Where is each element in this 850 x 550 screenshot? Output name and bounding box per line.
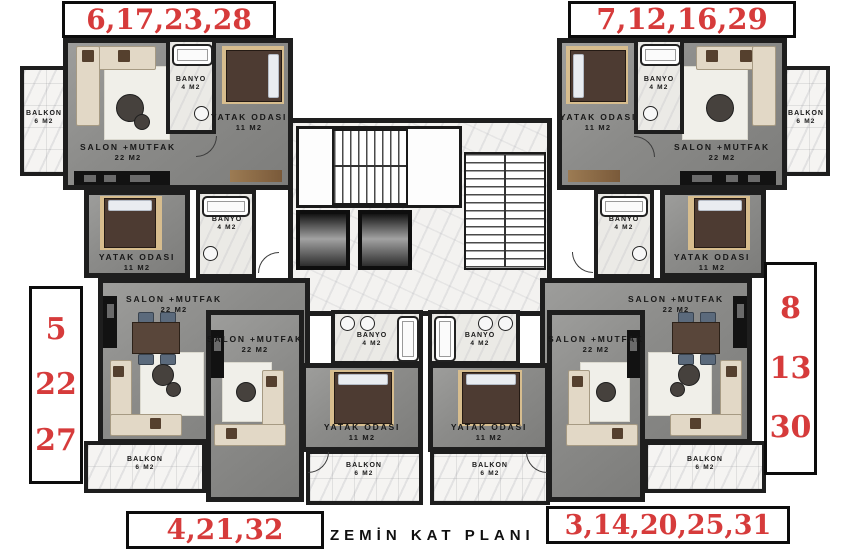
coffee-table bbox=[134, 114, 150, 130]
sofa-cushion bbox=[572, 376, 583, 387]
staircase-icon bbox=[332, 129, 408, 205]
coffee-table bbox=[236, 382, 256, 402]
apartment-numbers-mid-left: 5 22 27 bbox=[29, 286, 83, 484]
label-salon: SALON +MUTFAK 22 M2 bbox=[628, 294, 724, 314]
stove-burner bbox=[737, 304, 744, 318]
bathtub bbox=[397, 316, 419, 362]
chair bbox=[700, 354, 716, 365]
apartment-numbers-top-right: 7,12,16,29 bbox=[568, 1, 796, 38]
page-title: ZEMİN KAT PLANI bbox=[330, 527, 535, 544]
dining-table bbox=[132, 322, 180, 354]
label-balcony: BALKON 6 M2 bbox=[127, 456, 163, 471]
label-salon: SALON +MUTFAK 22 M2 bbox=[548, 334, 644, 354]
label-balcony: BALKON 6 M2 bbox=[788, 110, 824, 125]
label-banyo: BANYO 4 M2 bbox=[176, 76, 206, 91]
elevator-shaft bbox=[358, 210, 412, 270]
apartment-numbers-mid-right: 8 13 30 bbox=[764, 262, 817, 475]
elevator-shaft bbox=[296, 210, 350, 270]
sofa bbox=[752, 46, 776, 126]
apartment-numbers-top-left: 6,17,23,28 bbox=[62, 1, 276, 38]
sink bbox=[632, 246, 647, 261]
apartment-numbers-bottom-right: 3,14,20,25,31 bbox=[546, 506, 790, 544]
stove-burner bbox=[107, 304, 114, 318]
label-banyo: BANYO 4 M2 bbox=[644, 76, 674, 91]
coffee-table bbox=[706, 94, 734, 122]
label-salon: SALON +MUTFAK 22 M2 bbox=[207, 334, 303, 354]
bathtub bbox=[202, 196, 250, 217]
sofa-cushion bbox=[118, 50, 130, 62]
sink bbox=[643, 106, 658, 121]
sofa-cushion bbox=[113, 366, 124, 377]
sofa bbox=[566, 424, 638, 446]
stove-burner bbox=[84, 175, 96, 182]
label-salon: SALON +MUTFAK 22 M2 bbox=[80, 142, 176, 162]
label-bedroom: YATAK ODASI 11 M2 bbox=[451, 422, 527, 442]
pillow bbox=[338, 374, 388, 385]
label-bedroom: YATAK ODASI 11 M2 bbox=[211, 112, 287, 132]
bathtub bbox=[640, 44, 681, 66]
apartment-numbers-bottom-left: 4,21,32 bbox=[126, 511, 324, 549]
chair bbox=[138, 354, 154, 365]
label-banyo: BANYO 4 M2 bbox=[465, 332, 495, 347]
label-balcony: BALKON 6 M2 bbox=[346, 462, 382, 477]
wardrobe bbox=[230, 170, 282, 182]
sink bbox=[194, 106, 209, 121]
label-salon: SALON +MUTFAK 22 M2 bbox=[126, 294, 222, 314]
sofa-cushion bbox=[612, 428, 623, 439]
sofa-cushion bbox=[226, 428, 237, 439]
bathtub bbox=[600, 196, 648, 217]
label-bedroom: YATAK ODASI 11 M2 bbox=[674, 252, 750, 272]
sofa-cushion bbox=[82, 50, 94, 62]
sofa-cushion bbox=[266, 376, 277, 387]
label-bedroom: YATAK ODASI 11 M2 bbox=[324, 422, 400, 442]
pillow bbox=[573, 54, 584, 98]
pillow bbox=[698, 200, 742, 211]
sink bbox=[340, 316, 355, 331]
sofa-cushion bbox=[150, 418, 161, 429]
sofa-cushion bbox=[726, 366, 737, 377]
pillow bbox=[268, 54, 279, 98]
sofa-cushion bbox=[706, 50, 718, 62]
pillow bbox=[108, 200, 152, 211]
bathtub bbox=[172, 44, 213, 66]
pillow bbox=[466, 374, 516, 385]
wardrobe bbox=[568, 170, 620, 182]
label-banyo: BANYO 4 M2 bbox=[357, 332, 387, 347]
sink bbox=[360, 316, 375, 331]
stove-burner bbox=[726, 175, 738, 182]
bathtub bbox=[434, 316, 456, 362]
dining-table bbox=[672, 322, 720, 354]
floor-plan: BALKON 6 M2 SALON +MUTFAK 22 M2 BANYO 4 … bbox=[0, 0, 850, 550]
stove-burner bbox=[104, 175, 116, 182]
stair-rail bbox=[504, 155, 506, 267]
stair-rail bbox=[334, 165, 406, 167]
label-banyo: BANYO 4 M2 bbox=[609, 216, 639, 231]
sofa-cushion bbox=[690, 418, 701, 429]
label-bedroom: YATAK ODASI 11 M2 bbox=[99, 252, 175, 272]
label-balcony: BALKON 6 M2 bbox=[687, 456, 723, 471]
stove-burner bbox=[130, 175, 150, 182]
sofa-cushion bbox=[740, 50, 752, 62]
coffee-table bbox=[670, 382, 685, 397]
coffee-table bbox=[596, 382, 616, 402]
sofa bbox=[214, 424, 286, 446]
label-salon: SALON +MUTFAK 22 M2 bbox=[674, 142, 770, 162]
stove-burner bbox=[692, 175, 712, 182]
door-swing bbox=[572, 252, 593, 273]
coffee-table bbox=[166, 382, 181, 397]
door-swing bbox=[258, 252, 279, 273]
sofa bbox=[670, 414, 742, 436]
label-banyo: BANYO 4 M2 bbox=[212, 216, 242, 231]
sink bbox=[498, 316, 513, 331]
sofa bbox=[110, 414, 182, 436]
sink bbox=[478, 316, 493, 331]
sink bbox=[203, 246, 218, 261]
label-balcony: BALKON 6 M2 bbox=[472, 462, 508, 477]
label-bedroom: YATAK ODASI 11 M2 bbox=[560, 112, 636, 132]
stove-burner bbox=[748, 175, 760, 182]
label-balcony: BALKON 6 M2 bbox=[26, 110, 62, 125]
